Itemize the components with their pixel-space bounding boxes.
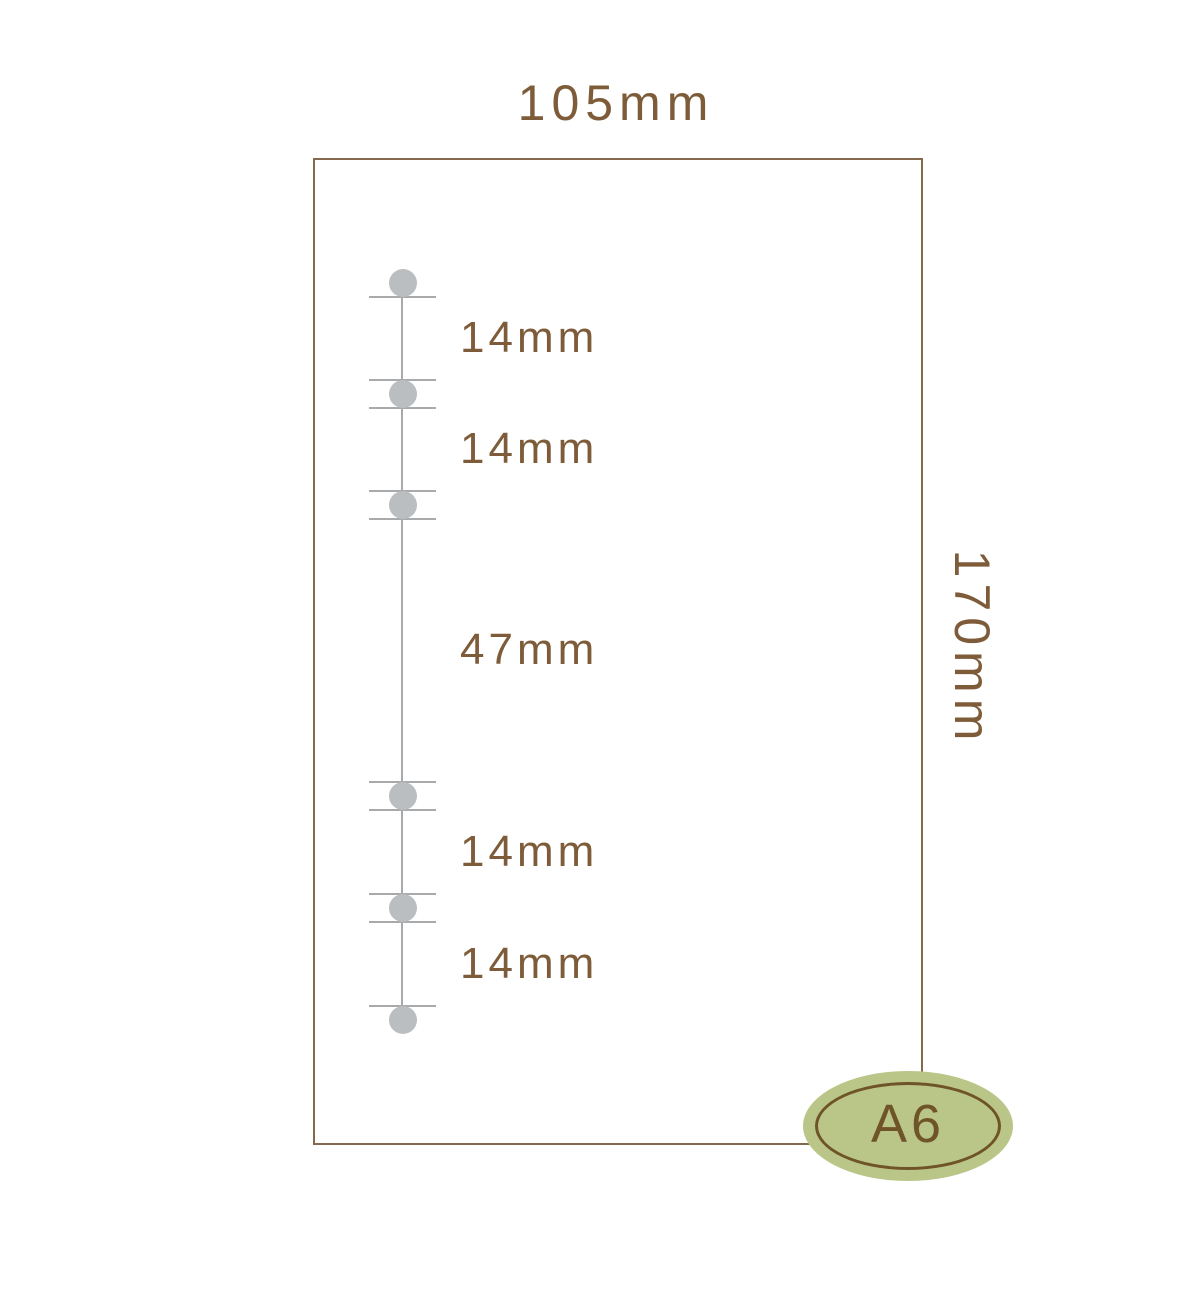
spacing-label: 14mm <box>460 316 598 360</box>
punch-hole <box>389 269 417 297</box>
punch-hole <box>389 1006 417 1034</box>
badge-label: A6 <box>871 1097 945 1155</box>
spacing-label: 14mm <box>460 830 598 874</box>
paper-outline <box>313 158 923 1145</box>
size-badge: A6 <box>803 1071 1013 1181</box>
paper-size-diagram: 105mm 14mm 14mm 47mm 14mm 14mm 170mm A6 <box>0 0 1200 1293</box>
punch-hole <box>389 894 417 922</box>
punch-hole <box>389 782 417 810</box>
spacing-label: 47mm <box>460 628 598 672</box>
punch-hole <box>389 380 417 408</box>
punch-hole <box>389 491 417 519</box>
spacing-label: 14mm <box>460 942 598 986</box>
width-dimension-label: 105mm <box>518 74 715 132</box>
spacing-label: 14mm <box>460 427 598 471</box>
badge-ring: A6 <box>815 1082 1001 1170</box>
height-dimension-label: 170mm <box>943 550 1001 747</box>
